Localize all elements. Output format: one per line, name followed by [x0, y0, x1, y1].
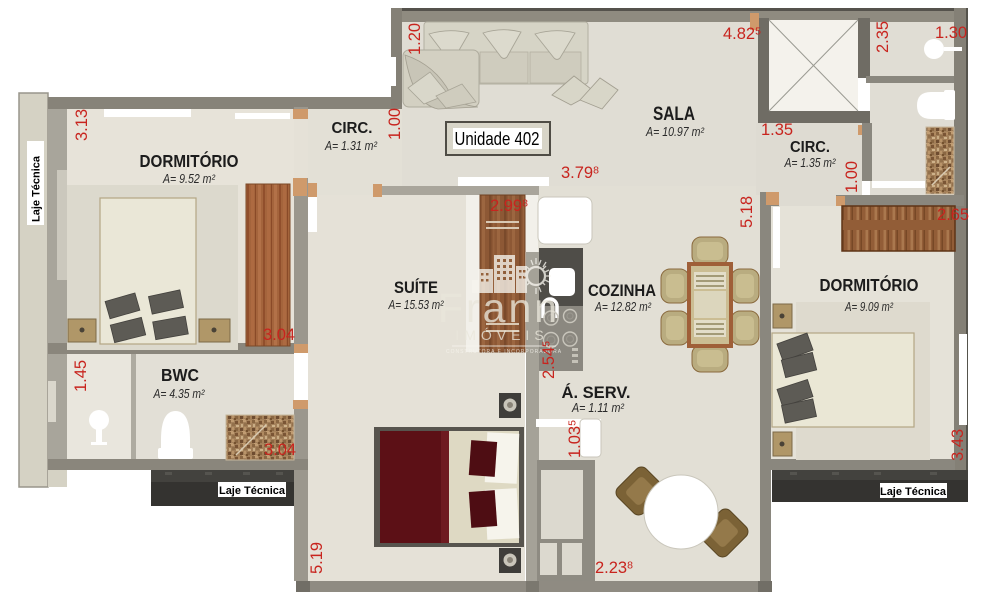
svg-text:2.65: 2.65 — [937, 206, 969, 224]
svg-text:SUÍTE: SUÍTE — [394, 278, 438, 297]
svg-text:1.20: 1.20 — [406, 23, 424, 55]
svg-text:1.00: 1.00 — [843, 161, 861, 193]
svg-text:3.04: 3.04 — [263, 326, 295, 344]
svg-text:A= 1.11 m²: A= 1.11 m² — [571, 401, 625, 415]
svg-text:A= 1.31 m²: A= 1.31 m² — [324, 139, 378, 153]
svg-text:1.35: 1.35 — [761, 121, 793, 139]
svg-text:Á. SERV.: Á. SERV. — [562, 383, 631, 402]
svg-text:1.30: 1.30 — [935, 24, 967, 42]
svg-text:IMÓVEIS: IMÓVEIS — [455, 327, 548, 343]
svg-text:Laje Técnica: Laje Técnica — [219, 485, 286, 497]
svg-text:A= 1.35 m²: A= 1.35 m² — [784, 156, 837, 170]
svg-text:A= 9.09 m²: A= 9.09 m² — [844, 300, 893, 314]
svg-text:A= 12.82 m²: A= 12.82 m² — [594, 300, 651, 314]
svg-text:DORMITÓRIO: DORMITÓRIO — [140, 150, 239, 171]
svg-text:COZINHA: COZINHA — [588, 282, 656, 300]
svg-text:Laje Técnica: Laje Técnica — [31, 155, 43, 222]
svg-text:3.43: 3.43 — [949, 429, 967, 461]
svg-text:3.04: 3.04 — [264, 441, 296, 459]
svg-text:3.13: 3.13 — [73, 109, 91, 141]
svg-text:CIRC.: CIRC. — [790, 139, 830, 156]
svg-text:A= 9.52 m²: A= 9.52 m² — [162, 172, 216, 186]
svg-text:A= 10.97 m²: A= 10.97 m² — [645, 125, 705, 139]
svg-text:1.00: 1.00 — [386, 108, 404, 140]
svg-text:Frann: Frann — [438, 285, 560, 331]
svg-text:DORMITÓRIO: DORMITÓRIO — [820, 274, 919, 295]
svg-text:2.35: 2.35 — [874, 21, 892, 53]
svg-text:A= 15.53 m²: A= 15.53 m² — [388, 298, 444, 312]
svg-text:Laje Técnica: Laje Técnica — [880, 486, 947, 498]
svg-text:5.18: 5.18 — [738, 196, 756, 228]
svg-text:BWC: BWC — [161, 365, 199, 385]
svg-text:A= 4.35 m²: A= 4.35 m² — [153, 387, 206, 401]
svg-text:5.19: 5.19 — [308, 542, 326, 574]
svg-text:CIRC.: CIRC. — [332, 120, 373, 137]
svg-text:Unidade 402: Unidade 402 — [455, 129, 540, 149]
svg-text:SALA: SALA — [653, 103, 695, 125]
svg-text:1.45: 1.45 — [72, 360, 90, 392]
